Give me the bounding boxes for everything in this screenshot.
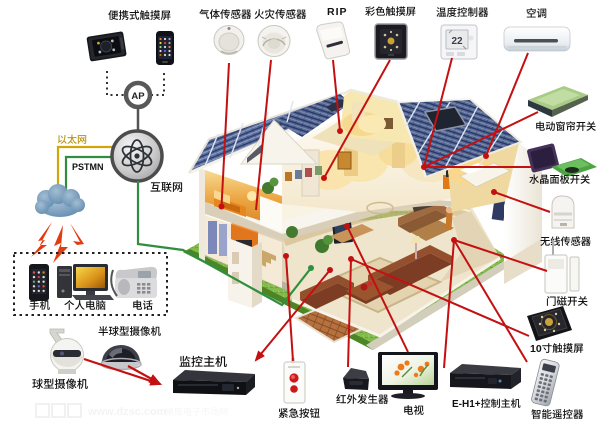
- svg-text:RIP: RIP: [327, 6, 348, 18]
- svg-text:E-H1+: E-H1+: [452, 399, 481, 410]
- svg-text:PSTMN: PSTMN: [72, 162, 104, 172]
- svg-text:AP: AP: [131, 91, 145, 102]
- svg-text:维库电子市场网: 维库电子市场网: [165, 406, 228, 417]
- svg-text:www.dzsc.com: www.dzsc.com: [87, 406, 167, 418]
- svg-text:22: 22: [451, 36, 463, 47]
- svg-text:10: 10: [530, 343, 542, 355]
